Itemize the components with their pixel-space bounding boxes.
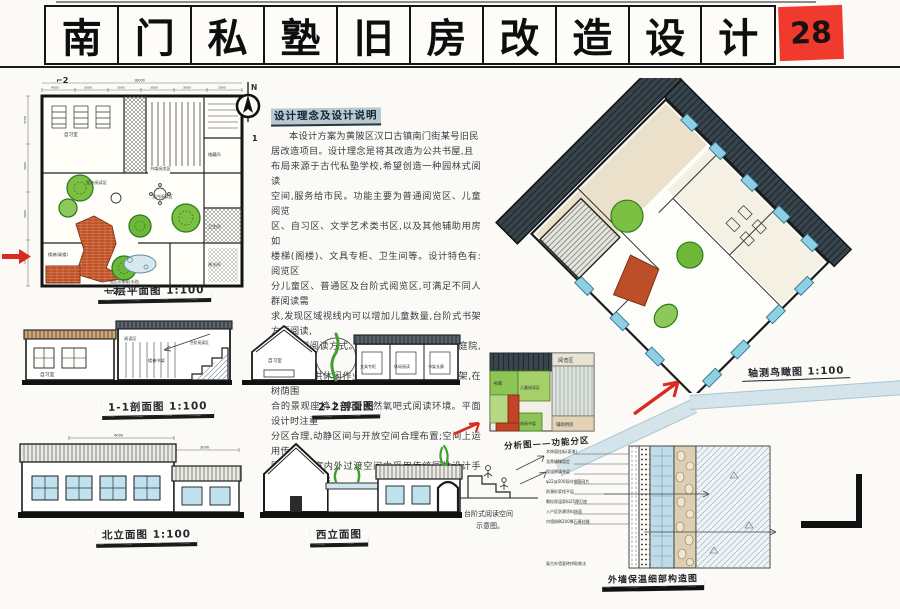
title-char: 旧	[336, 5, 412, 65]
title-char: 计	[700, 5, 776, 65]
sketch-label: 台阶式阅读空间	[464, 509, 513, 518]
title-char: 设	[628, 5, 704, 65]
room-label: 自习室	[64, 131, 78, 138]
section11-caption: 1-1剖面图 1:100	[102, 398, 214, 417]
title-underline	[0, 66, 900, 68]
svg-text:3000: 3000	[150, 86, 158, 90]
wall-detail-caption: 外墙保温细部构造图	[602, 571, 704, 588]
svg-text:3000: 3000	[183, 86, 191, 90]
detail-annotation: 保温棉填充层	[546, 468, 570, 474]
detail-annotation: 内墙粉刷200厚石膏封缝	[546, 518, 590, 524]
zone-label: 休闲书架	[520, 420, 536, 426]
title-char: 塾	[263, 5, 339, 65]
detail-annotation: 防潮砂浆找平层	[546, 488, 574, 494]
zone-label: 辅助用房	[556, 421, 574, 428]
svg-text:4000: 4000	[51, 86, 59, 90]
title-char: 私	[190, 5, 266, 65]
detail-annotation: 木饰面挂板(面漆)	[546, 448, 578, 454]
wall-detail-drawing: 木饰面挂板(面漆) 龙骨横撑固定 保温棉填充层 φ22@500双向钢筋网片 防潮…	[544, 432, 782, 572]
cut-mark: ⌐2	[56, 76, 68, 85]
notes-line: 居改造项目。设计理念是将其改造为公共书屋,且	[271, 144, 481, 159]
section-label: 台阶阅读区	[190, 340, 209, 345]
svg-text:18000: 18000	[134, 79, 145, 83]
sketch-label: 示意图。	[476, 521, 504, 530]
notes-heading: 设计理念及设计说明	[271, 107, 381, 126]
north-elevation-caption: 北立面图 1:100	[96, 526, 197, 545]
notes-line: 布局来源于古代私塾学校,希望创造一种园林式阅读	[271, 159, 481, 189]
svg-text:4500: 4500	[23, 116, 27, 124]
svg-text:3000: 3000	[117, 86, 125, 90]
svg-text:4000: 4000	[114, 434, 124, 438]
section-label: 文具专柜	[360, 363, 376, 369]
svg-text:3000: 3000	[23, 162, 27, 170]
detail-annotation: 颗粒保温浆料25厚打底	[546, 498, 587, 504]
room-label: 储藏间	[208, 151, 221, 158]
detail-annotation: φ22@500双向钢筋网片	[546, 478, 589, 484]
corner-mark-vertical	[856, 474, 862, 528]
room-label: 卫生间	[208, 223, 221, 230]
room-label: 书架阅览区	[150, 165, 171, 172]
red-arrow-axon	[630, 376, 682, 418]
notes-line: 区、自习区、文学艺术类书区,以及其他辅助用房如	[271, 219, 481, 249]
section-label: 自习室	[40, 371, 55, 378]
zone-label: 书库	[493, 380, 503, 387]
notes-line: 分儿童区、普通区及台阶式阅览区,可满足不同人群阅读需	[271, 279, 481, 309]
svg-text:2000: 2000	[218, 86, 226, 90]
north-arrow: N	[234, 80, 262, 124]
west-elevation-caption: 西立面图	[310, 526, 368, 544]
svg-text:3000: 3000	[84, 86, 92, 90]
sections-drawing: 自习室 阅读区 楼梯书架 台阶阅读区 自习室 文具专柜 休闲阅读 书架长廊	[14, 318, 466, 398]
zoning-diagram: 阅览区 书库 儿童阅读区 休闲书架 辅助用房	[486, 349, 601, 437]
top-rule	[56, 1, 816, 3]
title-char: 造	[555, 5, 631, 65]
section-label: 休闲阅读	[394, 363, 410, 369]
notes-line: 楼梯(阁楼)、文具专柜、卫生间等。设计特色有:阅览区	[271, 249, 481, 279]
notes-line: 本设计方案为黄陂区汉口古镇南门街某号旧民	[271, 129, 481, 144]
svg-text:3000: 3000	[200, 446, 210, 450]
axonometric-drawing	[480, 78, 880, 393]
north-label: N	[251, 83, 257, 92]
svg-text:3000: 3000	[23, 210, 27, 218]
cut-mark: 1	[252, 134, 258, 143]
section22-caption: 2-2剖面图	[312, 398, 381, 416]
sheet-number-badge: 28	[778, 5, 844, 61]
elevations-drawing: 4000 3000	[14, 430, 466, 530]
detail-annotation: 入户区防潮涂料饰面	[546, 508, 582, 514]
title-char: 房	[409, 5, 485, 65]
design-sheet: 南 门 私 塾 旧 房 改 造 设 计 28 18000 4000 3000 3…	[0, 0, 900, 609]
detail-annotation: 复古外墙瓷砖拼贴做法	[546, 560, 586, 566]
section-label: 书架长廊	[428, 363, 444, 369]
red-arrow-plan	[2, 249, 32, 265]
title-char: 门	[117, 5, 193, 65]
sheet-title: 南 门 私 塾 旧 房 改 造 设 计	[44, 5, 776, 65]
room-label: 楼梯(阁楼)	[48, 251, 68, 258]
floor-plan-drawing: 18000 4000 3000 3000 3000 3000 2000 4500…	[18, 76, 270, 308]
zone-label: 儿童阅读区	[520, 384, 540, 390]
section-label: 阅读区	[124, 335, 137, 342]
title-char: 南	[44, 5, 120, 65]
title-char: 改	[482, 5, 558, 65]
room-label: 室内阅读区	[152, 193, 173, 200]
cut-mark: ∟2	[106, 287, 118, 296]
detail-annotation: 龙骨横撑固定	[546, 458, 570, 464]
notes-line: 空间,服务给市民。功能主要为普通阅览区、儿童阅览	[271, 189, 481, 219]
zone-label: 阅览区	[558, 356, 574, 364]
corner-mark-horizontal	[801, 521, 862, 528]
section-label: 自习室	[268, 357, 282, 364]
stepped-reading-sketch: 台阶式阅读空间 示意图。	[458, 440, 550, 545]
room-label: 茶水间	[208, 261, 221, 268]
room-label: 室外阅读区	[86, 179, 107, 186]
section-label: 楼梯书架	[148, 357, 165, 364]
